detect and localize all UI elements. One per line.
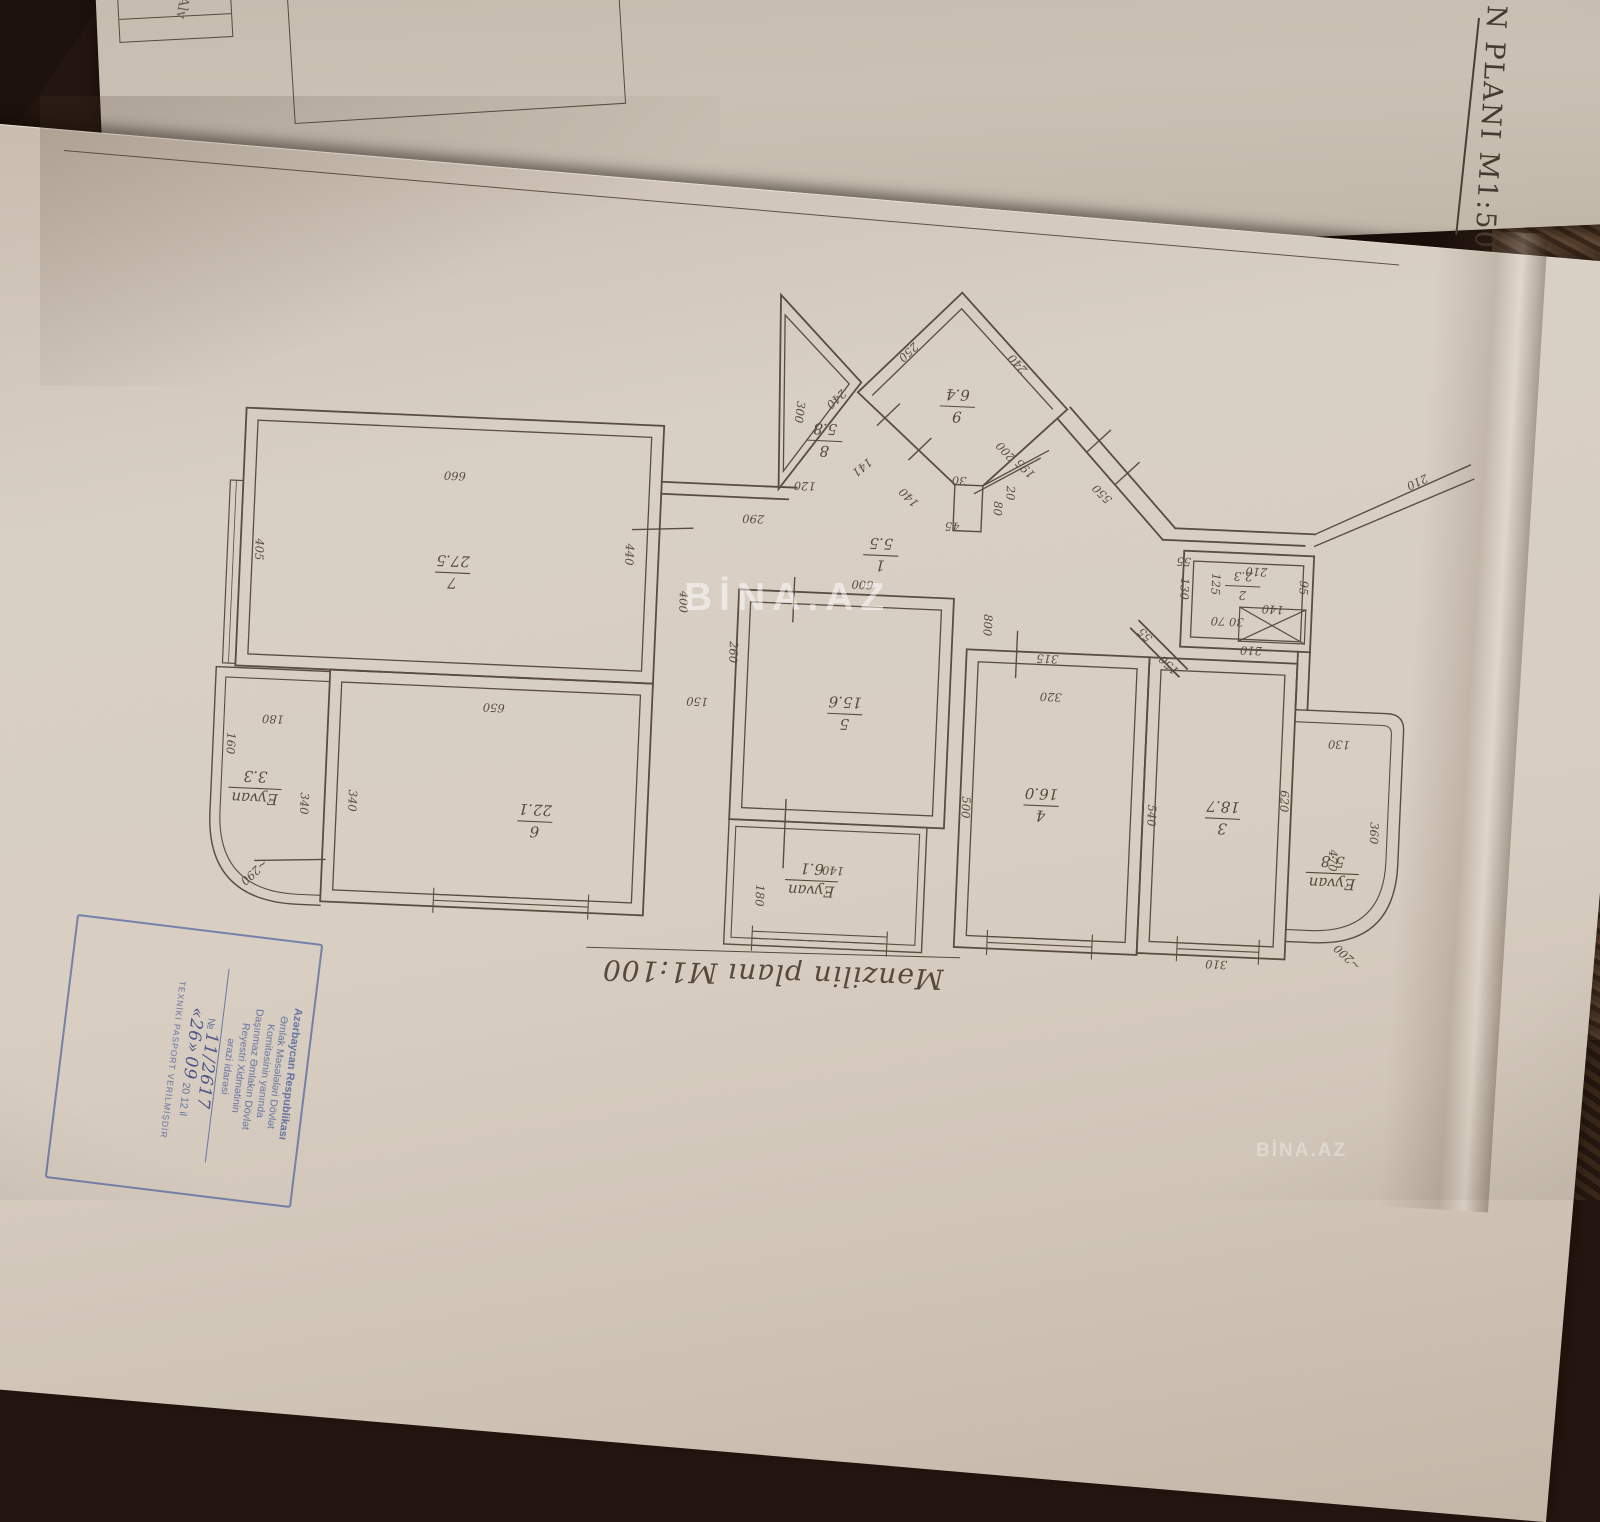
svg-text:4: 4 [1035, 806, 1046, 824]
svg-text:27.5: 27.5 [436, 551, 471, 570]
dimension-label: 240 [1005, 351, 1031, 377]
room-label: Eyvan3.3 [228, 766, 282, 808]
dimension-label: 200 [993, 439, 1019, 465]
corridor-wall [661, 482, 796, 500]
dimension-label: 140 [896, 485, 921, 510]
dimension-label: 55 [1176, 554, 1191, 569]
dimension-label: 95 [1296, 580, 1311, 595]
bina-az-watermark-center: BİNA.AZ [684, 576, 891, 620]
dimension-label: 340 [297, 792, 312, 815]
dimension-label: 45 [944, 519, 960, 534]
svg-text:6.4: 6.4 [946, 385, 971, 404]
dimension-label: 310 [1205, 957, 1228, 972]
svg-text:3: 3 [1217, 819, 1227, 837]
svg-text:5: 5 [839, 715, 849, 733]
stamp-date-month: 09 [179, 1055, 202, 1081]
dimension-label: 195 [1012, 456, 1037, 481]
dimension-label: 290 [742, 511, 766, 526]
svg-text:Eyvan: Eyvan [231, 788, 279, 808]
dimension-label: 30 70 [1210, 614, 1244, 629]
dimension-label: 360 [1367, 822, 1382, 845]
room-labels-layer: 727.5622.1515.6416.0318.715.522.396.485.… [225, 355, 1379, 924]
svg-text:15.6: 15.6 [828, 692, 863, 711]
dimension-label: 440 [622, 542, 637, 566]
room-label: 318.7 [1205, 797, 1241, 838]
dimension-label: 620 [1277, 790, 1292, 813]
svg-text:9: 9 [951, 407, 962, 425]
svg-text:8: 8 [819, 442, 829, 460]
dimension-label: 80 [991, 501, 1006, 516]
dimension-label: 130 [1328, 737, 1351, 752]
svg-text:18.7: 18.7 [1206, 797, 1241, 816]
dimension-label: 250 [896, 339, 922, 365]
dimension-label: 20 [1003, 484, 1018, 500]
official-stamp: Azərbaycan RespublikasıƏmlak Məsələləri … [45, 914, 324, 1208]
svg-text:16.0: 16.0 [1024, 784, 1059, 803]
dimension-label: 180 [262, 712, 285, 727]
dimension-label: 300 [792, 400, 809, 424]
diagonal-wall [1053, 407, 1180, 540]
dimension-label: 660 [444, 468, 467, 483]
dimension-label: 180 [752, 884, 767, 907]
svg-text:5.5: 5.5 [869, 534, 894, 553]
svg-text:Eyvan: Eyvan [787, 881, 835, 901]
dimension-label: 470 [1325, 848, 1340, 872]
svg-text:Eyvan: Eyvan [1308, 873, 1356, 893]
bina-az-watermark-corner: BİNA.AZ [1256, 1140, 1347, 1162]
room-label: 96.4 [940, 385, 976, 426]
svg-text:5.8: 5.8 [813, 419, 838, 438]
svg-text:3.3: 3.3 [243, 767, 268, 786]
dimension-label: 140 [822, 863, 845, 878]
dimension-label: 120 [793, 479, 816, 494]
dimension-label: 30 [951, 473, 966, 488]
svg-text:1: 1 [875, 556, 885, 574]
dimension-label: 160 [223, 732, 238, 755]
dimension-label: 210 [1240, 643, 1264, 658]
dimension-label: 141 [849, 455, 875, 480]
stamp-date-year: 20 12 il [177, 1082, 193, 1117]
dimension-label: 125 [1208, 573, 1223, 596]
room-label: 85.8 [807, 419, 843, 460]
room-label: 15.5 [863, 534, 899, 575]
photo-of-floor-plan-document: { "photo": { "back_sheet_header": "N PLA… [0, 0, 1600, 1200]
dimension-label: 500 [958, 796, 973, 819]
svg-text:6: 6 [529, 822, 540, 840]
dimension-label: 540 [1144, 804, 1159, 827]
dimension-label: 800 [980, 614, 995, 637]
dimension-label: 260 [726, 640, 741, 664]
stamp-content: Azərbaycan RespublikasıƏmlak Məsələləri … [54, 923, 315, 1199]
svg-text:22.1: 22.1 [518, 800, 553, 819]
room-label: 416.0 [1023, 784, 1059, 825]
dimension-label: 140 [1262, 602, 1285, 617]
svg-text:6.1: 6.1 [800, 859, 825, 878]
dimension-label: 320 [1039, 690, 1062, 705]
svg-text:7: 7 [447, 574, 458, 592]
dimension-label: 315 [1036, 651, 1059, 666]
room-label: 727.5 [435, 551, 471, 592]
svg-text:2: 2 [1238, 588, 1247, 602]
dimension-label: 340 [345, 789, 360, 812]
room8-walls [773, 295, 865, 492]
dimension-label: 55 [1135, 625, 1155, 645]
dimension-label: 130 [1177, 577, 1192, 600]
room7-walls [235, 408, 664, 684]
dimension-label: 150 [686, 694, 709, 709]
dimension-label: 210 [1404, 471, 1431, 494]
dimension-label: 650 [482, 700, 505, 715]
dimension-label: 240 [824, 386, 850, 412]
room-label: 622.1 [517, 800, 553, 841]
dimension-label: ~200 [1331, 941, 1364, 973]
room-label: 515.6 [827, 692, 863, 733]
dimension-label: 405 [252, 537, 267, 561]
dimension-labels-layer: 6604056502904004402601506008005001401803… [216, 310, 1437, 980]
dimension-label: 550 [1089, 481, 1114, 506]
dimension-label: 210 [1245, 564, 1269, 579]
